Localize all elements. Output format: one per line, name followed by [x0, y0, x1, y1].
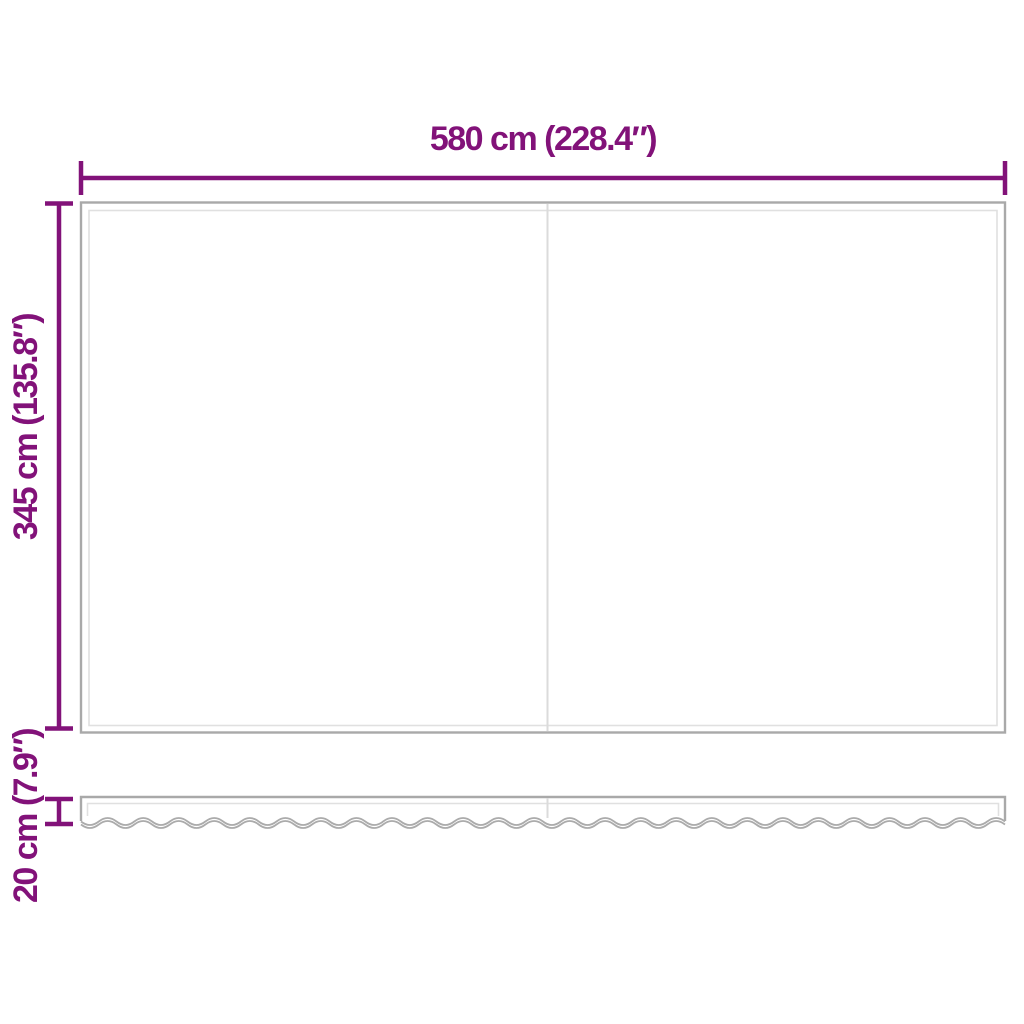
fabric-panel: [81, 203, 1005, 733]
valance-height-dimension-label: 20 cm (7.9″): [9, 729, 43, 903]
fabric-panel-outline: [81, 203, 1005, 733]
width-dimension-label: 580 cm (228.4″): [430, 122, 656, 156]
valance-strip: [81, 797, 1005, 828]
valance-hem-line: [88, 804, 999, 817]
awning-fabric-dimension-diagram: 580 cm (228.4″) 345 cm (135.8″) 20 cm (7…: [0, 0, 1024, 1024]
height-dimension-label: 345 cm (135.8″): [9, 314, 43, 540]
valance-outline: [81, 797, 1005, 821]
valance-height-dimension-line: [45, 799, 73, 824]
width-dimension-line: [81, 161, 1005, 195]
height-dimension-line: [45, 203, 73, 729]
